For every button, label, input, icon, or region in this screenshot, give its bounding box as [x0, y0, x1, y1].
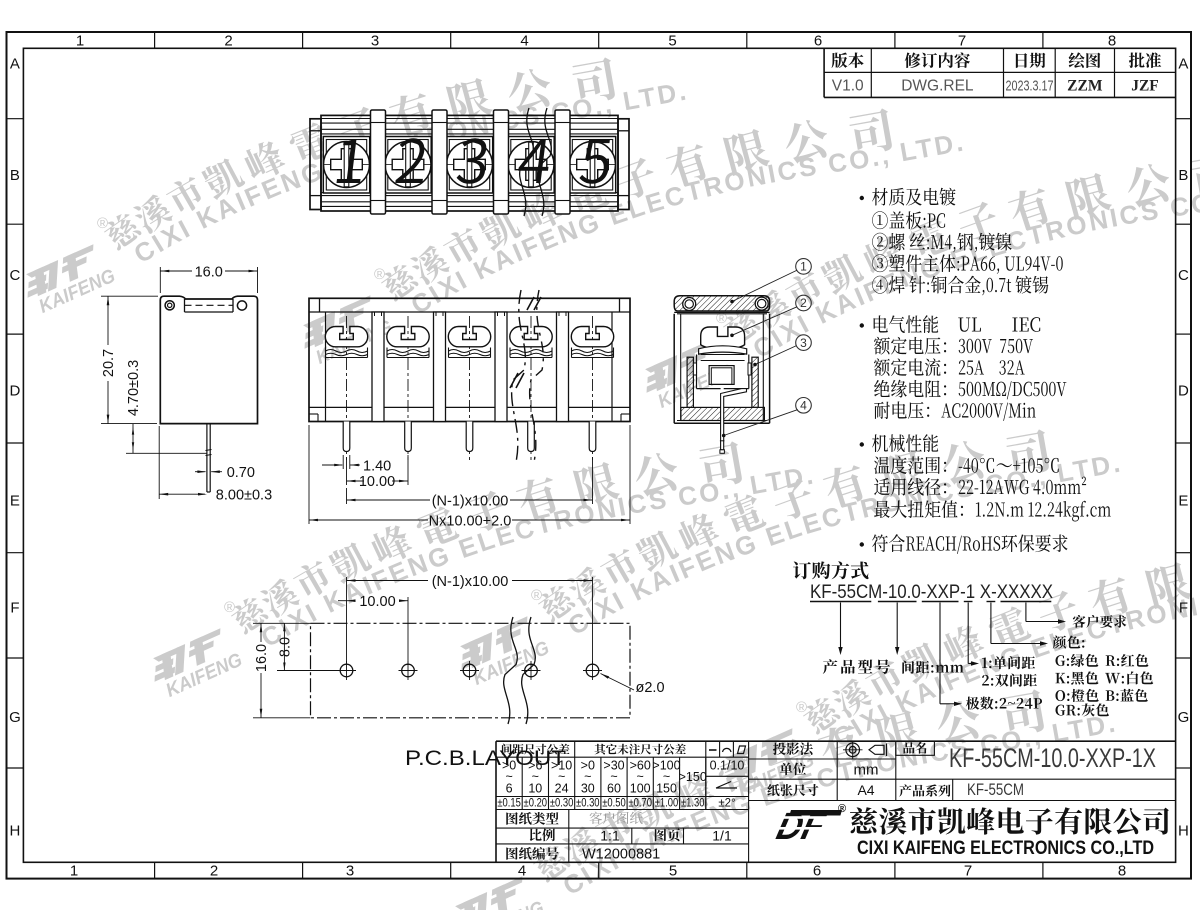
svg-text:(N-1)x10.00: (N-1)x10.00 [432, 574, 509, 590]
svg-text:8: 8 [1118, 863, 1126, 880]
svg-text:1: 1 [76, 33, 84, 50]
svg-text:4: 4 [800, 399, 807, 413]
svg-text:10.00: 10.00 [359, 474, 395, 490]
svg-text:D: D [9, 383, 20, 400]
svg-text:®: ® [838, 803, 846, 815]
svg-text:®: ® [374, 266, 385, 283]
svg-text:±0.30: ±0.30 [576, 798, 600, 810]
svg-text:®: ® [796, 699, 807, 716]
svg-text:5: 5 [669, 863, 677, 880]
svg-text:±0.30: ±0.30 [550, 798, 574, 810]
svg-text:V1.0: V1.0 [832, 78, 864, 95]
svg-text:5: 5 [668, 33, 676, 50]
svg-text:G: G [9, 709, 21, 726]
svg-text:1.40: 1.40 [363, 459, 391, 475]
svg-text:E: E [10, 493, 20, 510]
svg-text:CIXI KAIFENG ELECTRONICS CO.,L: CIXI KAIFENG ELECTRONICS CO.,LTD [857, 838, 1154, 859]
svg-text:A: A [1178, 56, 1188, 73]
svg-text:0.1/10: 0.1/10 [710, 759, 745, 773]
svg-text:mm: mm [854, 762, 879, 779]
svg-text:±0.50: ±0.50 [602, 798, 626, 810]
svg-text:P.C.B.LAYOUT: P.C.B.LAYOUT [405, 746, 566, 770]
svg-text:16.0: 16.0 [254, 644, 270, 672]
svg-text:±0.15: ±0.15 [497, 798, 521, 810]
svg-text:±1.30: ±1.30 [681, 798, 705, 810]
svg-text:60: 60 [607, 782, 621, 796]
svg-text:>150: >150 [679, 770, 707, 784]
svg-text:7: 7 [958, 33, 966, 50]
svg-text:16.0: 16.0 [195, 265, 223, 281]
svg-text:®: ® [97, 215, 108, 232]
svg-text:±2°: ±2° [718, 798, 735, 810]
svg-text:2023.3.17: 2023.3.17 [1006, 79, 1054, 95]
svg-text:±0.20: ±0.20 [524, 798, 548, 810]
svg-text:10: 10 [528, 782, 542, 796]
svg-text:30: 30 [581, 782, 595, 796]
svg-text:KF-55CM-10.0-XXP-1 X-XXXXX: KF-55CM-10.0-XXP-1 X-XXXXX [810, 581, 1053, 603]
svg-text:3: 3 [371, 33, 379, 50]
svg-text:C: C [1178, 267, 1189, 284]
svg-text:1/1: 1/1 [712, 828, 732, 844]
svg-text:6: 6 [813, 863, 821, 880]
svg-text:KF-55CM: KF-55CM [967, 780, 1024, 799]
svg-text:3: 3 [800, 336, 807, 350]
svg-text:4.70±0.3: 4.70±0.3 [126, 360, 142, 416]
svg-text:3: 3 [346, 863, 354, 880]
svg-text:2: 2 [800, 296, 807, 310]
svg-text:±1.00: ±1.00 [655, 798, 679, 810]
svg-text:6: 6 [814, 33, 822, 50]
svg-text:KF-55CM-10.0-XXP-1X: KF-55CM-10.0-XXP-1X [949, 743, 1156, 773]
svg-text:D: D [1178, 383, 1189, 400]
svg-text:JZF: JZF [1131, 78, 1159, 95]
svg-text:®: ® [224, 599, 235, 616]
svg-text:H: H [1178, 822, 1189, 839]
svg-text:±0.70: ±0.70 [628, 798, 652, 810]
svg-text:C: C [9, 267, 20, 284]
svg-text:ø2.0: ø2.0 [636, 680, 665, 696]
svg-text:Nx10.00+2.0: Nx10.00+2.0 [429, 514, 512, 530]
svg-text:A: A [10, 56, 20, 73]
svg-text:E: E [1178, 493, 1188, 510]
svg-text:1:1: 1:1 [600, 828, 620, 844]
svg-text:1: 1 [800, 260, 807, 274]
svg-text:24: 24 [555, 782, 569, 796]
svg-text:0.70: 0.70 [227, 465, 255, 481]
svg-text:W12000881: W12000881 [582, 847, 660, 863]
svg-text:6: 6 [506, 782, 513, 796]
svg-text:8.0: 8.0 [278, 637, 294, 657]
svg-text:B: B [10, 167, 20, 184]
svg-text:2: 2 [210, 863, 218, 880]
svg-text:F: F [10, 600, 19, 617]
svg-text:F: F [1179, 600, 1188, 617]
svg-text:®: ® [531, 587, 542, 604]
svg-text:4: 4 [520, 33, 528, 50]
svg-text:B: B [1178, 167, 1188, 184]
svg-text:20.7: 20.7 [101, 349, 117, 377]
svg-text:4: 4 [518, 863, 526, 880]
svg-text:(N-1)x10.00: (N-1)x10.00 [432, 494, 509, 510]
svg-text:8: 8 [1108, 33, 1116, 50]
svg-text:100: 100 [630, 782, 651, 796]
svg-text:H: H [9, 822, 20, 839]
svg-text:ZZM: ZZM [1067, 78, 1103, 95]
svg-text:DWG.REL: DWG.REL [901, 78, 974, 95]
svg-text:G: G [1178, 709, 1190, 726]
svg-text:A4: A4 [857, 782, 874, 798]
svg-text:150: 150 [656, 782, 677, 796]
svg-text:8.00±0.3: 8.00±0.3 [216, 488, 272, 504]
svg-text:2: 2 [224, 33, 232, 50]
svg-text:1: 1 [70, 863, 78, 880]
svg-text:7: 7 [964, 863, 972, 880]
svg-text:10.00: 10.00 [359, 594, 395, 610]
